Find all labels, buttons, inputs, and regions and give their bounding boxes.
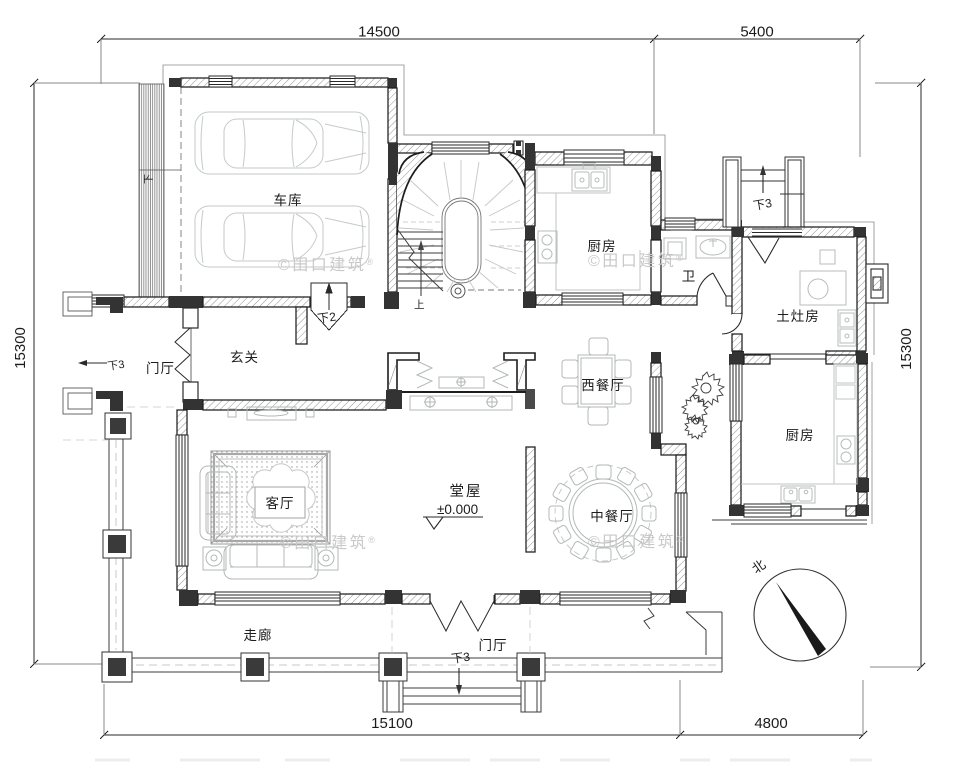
svg-text:15100: 15100 [371,715,413,732]
svg-text:14500: 14500 [358,24,400,41]
svg-text:厨房: 厨房 [588,239,617,254]
svg-text:门厅: 门厅 [146,361,175,376]
svg-text:中餐厅: 中餐厅 [590,509,634,524]
svg-text:±0.000: ±0.000 [437,502,478,517]
svg-text:下: 下 [144,174,155,184]
svg-text:©田口建筑®: ©田口建筑® [278,256,375,274]
svg-text:土灶房: 土灶房 [776,309,820,324]
svg-text:西餐厅: 西餐厅 [581,378,625,393]
svg-text:5400: 5400 [740,24,773,41]
svg-text:下3: 下3 [107,359,126,373]
svg-text:下2: 下2 [316,309,337,326]
svg-text:门厅: 门厅 [479,638,508,653]
svg-text:15300: 15300 [12,327,29,369]
svg-text:©田口建筑®: ©田口建筑® [588,533,685,551]
svg-text:4800: 4800 [754,715,787,732]
svg-text:玄关: 玄关 [230,349,259,365]
svg-text:车库: 车库 [274,192,303,208]
svg-text:走廊: 走廊 [244,627,273,643]
svg-text:厨房: 厨房 [786,428,815,443]
svg-text:客厅: 客厅 [266,495,295,511]
svg-text:堂屋: 堂屋 [450,483,483,500]
svg-text:©田口建筑®: ©田口建筑® [280,534,377,552]
svg-text:上: 上 [414,299,425,311]
svg-text:卫: 卫 [682,269,697,284]
svg-text:下3: 下3 [450,649,471,666]
svg-text:15300: 15300 [898,328,915,370]
